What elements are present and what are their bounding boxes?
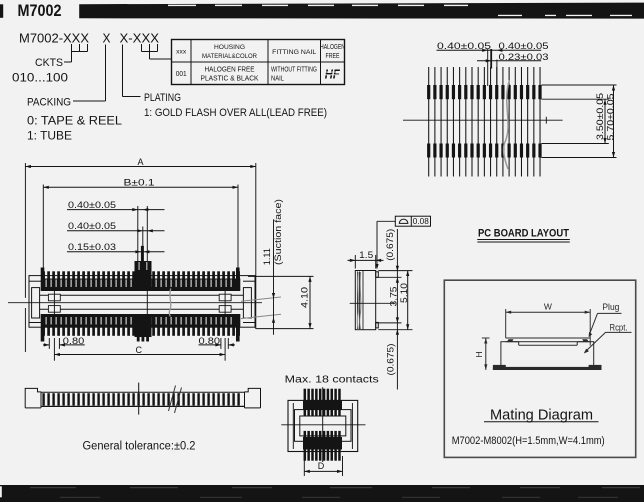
svg-text:PC BOARD LAYOUT: PC BOARD LAYOUT [478,228,569,240]
svg-text:B±0.1: B±0.1 [124,178,155,188]
svg-text:M7002-M8002(H=1.5mm,W=4.1mm): M7002-M8002(H=1.5mm,W=4.1mm) [452,435,605,447]
svg-text:xxx: xxx [176,49,187,56]
svg-text:5.70±0.05: 5.70±0.05 [605,93,615,140]
svg-text:0.40±0.05: 0.40±0.05 [68,200,116,210]
svg-text:X-XXX: X-XXX [120,32,160,46]
svg-text:1: GOLD FLASH OVER ALL(LEA: 1: GOLD FLASH OVER ALL(LEAD FREE) [144,107,327,119]
svg-text:0.80: 0.80 [199,336,221,347]
svg-text:Mating Diagram: Mating Diagram [490,408,593,424]
svg-text:D: D [318,461,325,471]
svg-text:0.40±0.05: 0.40±0.05 [499,41,549,51]
svg-text:X: X [103,32,112,46]
svg-text:A: A [137,157,143,167]
svg-text:Max. 18 contacts: Max. 18 contacts [285,375,379,386]
svg-text:(0.675): (0.675) [385,229,395,261]
svg-text:M7002-XXX: M7002-XXX [19,32,90,46]
svg-text:FREE: FREE [326,51,340,60]
svg-text:HALOGEN: HALOGEN [320,42,345,51]
svg-text:0: TAPE & REEL: 0: TAPE & REEL [27,116,123,128]
svg-text:(Suction face): (Suction face) [273,199,284,265]
svg-text:1.5: 1.5 [359,250,373,260]
svg-text:HALOGEN FREE: HALOGEN FREE [205,67,255,74]
svg-text:PLATING: PLATING [144,92,181,104]
svg-text:010...100: 010...100 [12,71,68,85]
svg-text:H: H [474,351,484,357]
svg-text:(0.675): (0.675) [385,344,395,376]
svg-text:PLASTIC & BLACK: PLASTIC & BLACK [201,76,259,83]
svg-text:C: C [135,345,142,355]
svg-text:1.11: 1.11 [262,248,272,265]
svg-text:FITTING NAIL: FITTING NAIL [272,49,316,56]
svg-text:0.08: 0.08 [413,216,429,226]
svg-text:HOUSING: HOUSING [214,44,245,51]
svg-text:3.50±0.05: 3.50±0.05 [595,93,605,140]
svg-text:PACKING: PACKING [27,97,71,109]
svg-text:WITHOUT FITTING: WITHOUT FITTING [271,67,317,74]
svg-text:Plug: Plug [602,302,619,312]
svg-text:Rcpt.: Rcpt. [610,323,628,333]
svg-text:MATERIAL&COLOR: MATERIAL&COLOR [202,53,257,60]
svg-text:CKTS: CKTS [35,57,63,69]
svg-text:M7002: M7002 [18,2,62,20]
svg-text:1: TUBE: 1: TUBE [27,131,72,143]
svg-text:W: W [544,302,552,312]
svg-text:0.40±0.05: 0.40±0.05 [68,221,116,231]
svg-text:General tolerance:±0.2: General tolerance:±0.2 [83,441,196,453]
svg-text:0.80: 0.80 [63,336,85,347]
svg-text:4.10: 4.10 [300,287,310,308]
svg-text:NAIL: NAIL [271,76,284,83]
svg-text:0.15±0.03: 0.15±0.03 [68,242,116,252]
svg-text:001: 001 [176,71,187,78]
